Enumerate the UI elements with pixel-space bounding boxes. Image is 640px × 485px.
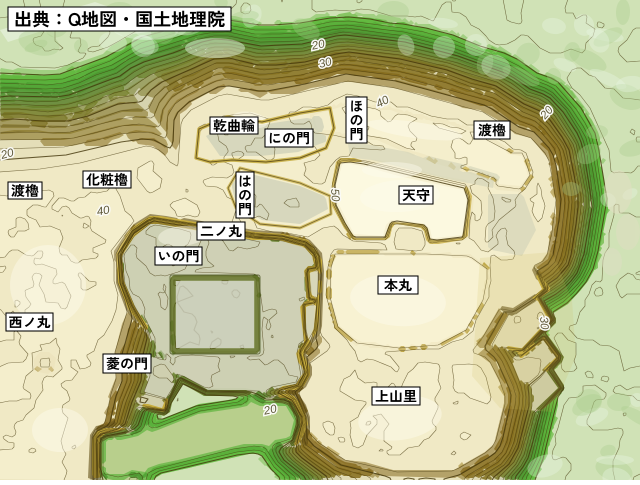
svg-text:30: 30 <box>537 316 550 330</box>
svg-text:50: 50 <box>328 188 341 202</box>
